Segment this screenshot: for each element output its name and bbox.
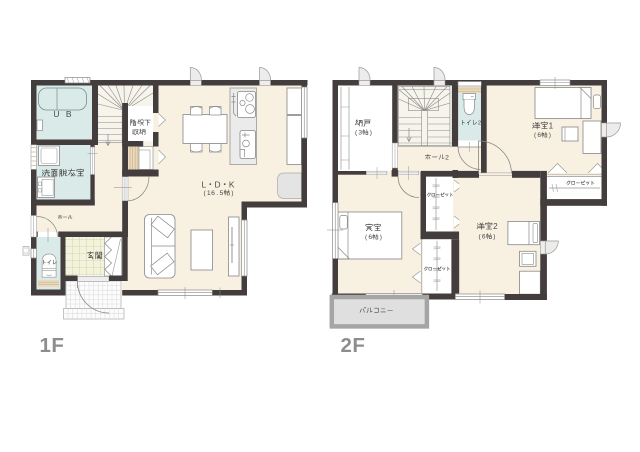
svg-text:L・D・K: L・D・K: [201, 179, 234, 189]
svg-text:1: 1: [549, 122, 554, 131]
svg-text:6: 6: [368, 234, 372, 241]
svg-text:1F: 1F: [40, 334, 65, 357]
svg-text:): ): [493, 234, 495, 241]
svg-text:.: .: [216, 190, 218, 197]
svg-text:): ): [380, 234, 382, 241]
svg-text:2: 2: [445, 154, 449, 161]
svg-text:): ): [549, 132, 551, 139]
svg-text:): ): [231, 190, 233, 197]
svg-text:6: 6: [482, 234, 486, 241]
svg-text:U B: U B: [53, 109, 73, 119]
svg-text:): ): [370, 130, 372, 137]
svg-text:3: 3: [358, 130, 362, 137]
svg-text:2F: 2F: [341, 334, 366, 357]
svg-text:5: 5: [220, 190, 224, 197]
svg-text:6: 6: [537, 132, 541, 139]
svg-text:2: 2: [478, 121, 481, 127]
svg-text:2: 2: [493, 222, 498, 231]
svg-text:6: 6: [211, 190, 215, 197]
